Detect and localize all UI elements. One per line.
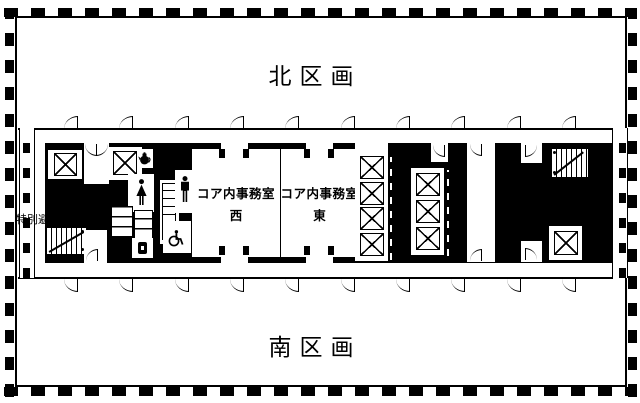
stair-dot (553, 171, 556, 174)
elevator-bank (411, 168, 444, 255)
elevator-x-box-icon (416, 173, 440, 196)
core-office-west: コア内事務室 西 (192, 149, 280, 257)
escape-stair-label-west: 特別避難階段 (16, 211, 82, 227)
door-arc-icon (96, 144, 108, 156)
door-jamb (304, 246, 310, 255)
west-wall-dashes (23, 128, 30, 278)
slop-sink (132, 238, 153, 258)
core-office-east: コア内事務室 東 (281, 149, 358, 257)
accessible-toilet (163, 221, 191, 253)
elevator-x-box-icon (113, 151, 137, 175)
stair-direction-line (49, 231, 84, 252)
elevator-x-box-icon (54, 153, 77, 176)
room-label: コア内事務室 (197, 183, 275, 202)
stair-direction-line (554, 151, 584, 175)
door-gap (521, 143, 542, 163)
door-arc-icon (64, 116, 78, 129)
border-left-dashes (5, 8, 14, 397)
door-jamb (328, 149, 334, 158)
elevator-x-box-icon (554, 231, 578, 255)
elevator-x-box-icon (360, 207, 384, 230)
door-arc-icon (396, 116, 410, 129)
north-section-label: 北区画 (17, 57, 613, 91)
elevator-x-box-icon (360, 182, 384, 205)
escape-stair-label-east: 特別避難階段 (527, 183, 593, 199)
door-arc-icon (175, 279, 189, 292)
toilet-stalls (111, 206, 133, 237)
door-arc-icon (525, 248, 537, 260)
door-arc-icon (451, 116, 465, 129)
door-arc-icon (175, 116, 189, 129)
door-arc-icon (285, 279, 299, 292)
east-wall-dashes (619, 128, 626, 278)
door-gap (431, 143, 448, 162)
kitchenette (137, 149, 153, 168)
hatched-stair-icon (550, 148, 589, 178)
door-arc-icon (507, 279, 521, 292)
door-arc-icon (562, 279, 576, 292)
door-arc-icon (119, 116, 133, 129)
elevator-shaft (48, 150, 82, 179)
door-arc-icon (230, 116, 244, 129)
door-arc-icon (451, 279, 465, 292)
elevator-x-box-icon (360, 233, 384, 256)
door-arc-icon (525, 145, 537, 157)
elevator-x-box-icon (360, 156, 384, 179)
male-figure-icon (179, 176, 191, 203)
door-jamb (243, 246, 249, 255)
door-arc-icon (64, 279, 78, 292)
door-jamb (243, 149, 249, 158)
door-arc-icon (285, 116, 299, 129)
toilet-stalls (134, 210, 153, 239)
door-arc-icon (396, 279, 410, 292)
door-arc-icon (341, 279, 355, 292)
border-bottom-dashes (4, 387, 637, 396)
stair-dot (553, 151, 556, 154)
south-section-label: 南区画 (17, 328, 613, 362)
room-label: 西 (230, 205, 243, 224)
room-label: 東 (313, 205, 326, 224)
north-corridor-wall (18, 128, 613, 130)
door-gap (221, 255, 248, 264)
core-vestibule-bottom (84, 230, 107, 263)
elevator-x-box-icon (416, 200, 440, 223)
shaft-dashed-line (390, 157, 392, 260)
shaft-dashed-line (447, 170, 449, 256)
door-gap (306, 255, 333, 264)
door-arc-icon (341, 116, 355, 129)
door-arc-icon (433, 145, 445, 157)
female-figure-icon (135, 179, 148, 206)
door-jamb (219, 149, 225, 158)
door-arc-icon (507, 116, 521, 129)
door-gap (521, 241, 542, 262)
teapot-icon (138, 152, 151, 165)
room-label: コア内事務室 (281, 183, 359, 202)
door-arc-icon (470, 249, 482, 261)
border-top-line (16, 16, 627, 18)
floor-plan: 北区画 南区画 (0, 0, 640, 403)
core-vestibule-top (84, 143, 109, 184)
door-arc-icon (562, 116, 576, 129)
door-jamb (304, 149, 310, 158)
elevator-x-box-icon (416, 227, 440, 250)
hatched-stair-icon (45, 227, 87, 255)
elevator-bank (355, 143, 388, 261)
door-arc-icon (119, 279, 133, 292)
door-jamb (328, 246, 334, 255)
core-corridor (467, 143, 495, 262)
door-arc-icon (86, 249, 98, 261)
border-right-dashes (628, 8, 637, 397)
door-arc-icon (230, 279, 244, 292)
sink-basin (141, 246, 144, 250)
door-jamb (219, 246, 225, 255)
core-east-end-wall (612, 128, 628, 278)
south-corridor-wall (18, 277, 613, 279)
door-arc-icon (470, 144, 482, 156)
elevator-shaft (549, 226, 582, 260)
wheelchair-icon (167, 230, 184, 247)
core-west-end-wall (19, 128, 35, 278)
